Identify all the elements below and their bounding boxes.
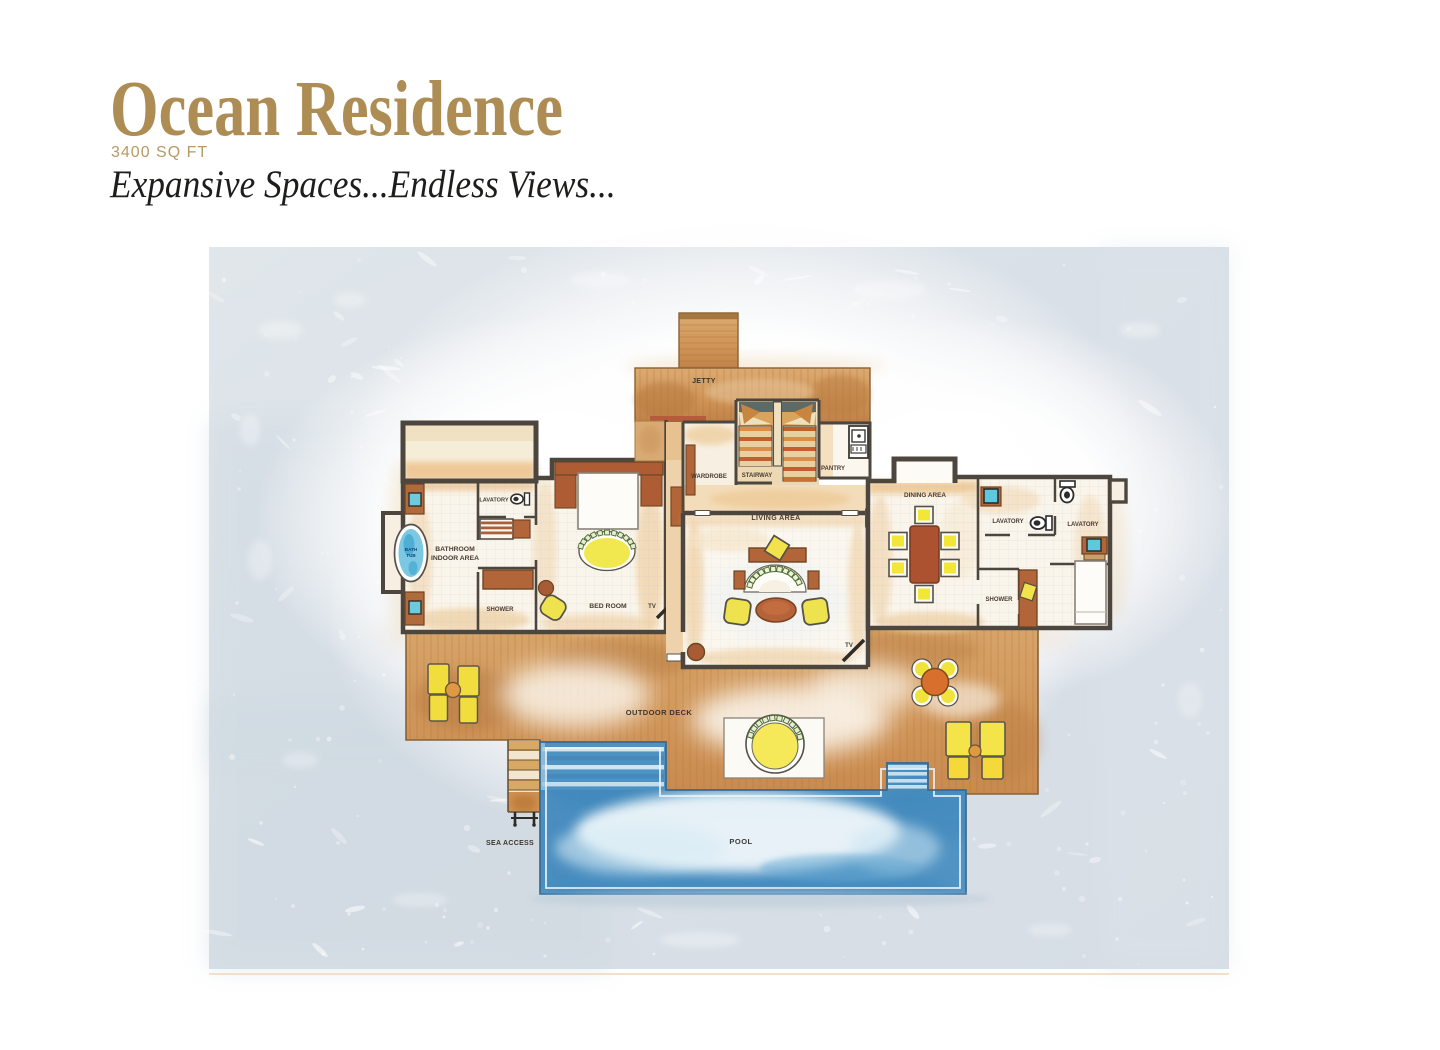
svg-text:BATHROOM: BATHROOM [435,546,475,553]
svg-text:OUTDOOR DECK: OUTDOOR DECK [626,708,693,717]
svg-text:DINING AREA: DINING AREA [904,492,946,499]
svg-text:INDOOR AREA: INDOOR AREA [431,555,479,562]
svg-text:SHOWER: SHOWER [986,597,1014,603]
svg-text:SHOWER: SHOWER [487,607,515,613]
svg-text:BED ROOM: BED ROOM [589,603,627,610]
svg-text:TUB: TUB [406,553,416,558]
svg-text:LAVATORY: LAVATORY [479,498,508,504]
svg-text:POOL: POOL [729,837,752,846]
svg-text:LAVATORY: LAVATORY [1067,522,1098,528]
svg-text:PANTRY: PANTRY [821,466,845,472]
svg-text:LIVING AREA: LIVING AREA [751,515,800,522]
svg-text:TV: TV [845,643,853,649]
svg-text:SEA ACCESS: SEA ACCESS [486,840,534,847]
svg-text:LAVATORY: LAVATORY [992,519,1023,525]
svg-text:BATH: BATH [405,547,418,552]
svg-text:TV: TV [648,604,656,610]
svg-text:STAIRWAY: STAIRWAY [742,473,773,479]
svg-text:WARDROBE: WARDROBE [691,474,727,480]
svg-text:JETTY: JETTY [692,378,716,385]
